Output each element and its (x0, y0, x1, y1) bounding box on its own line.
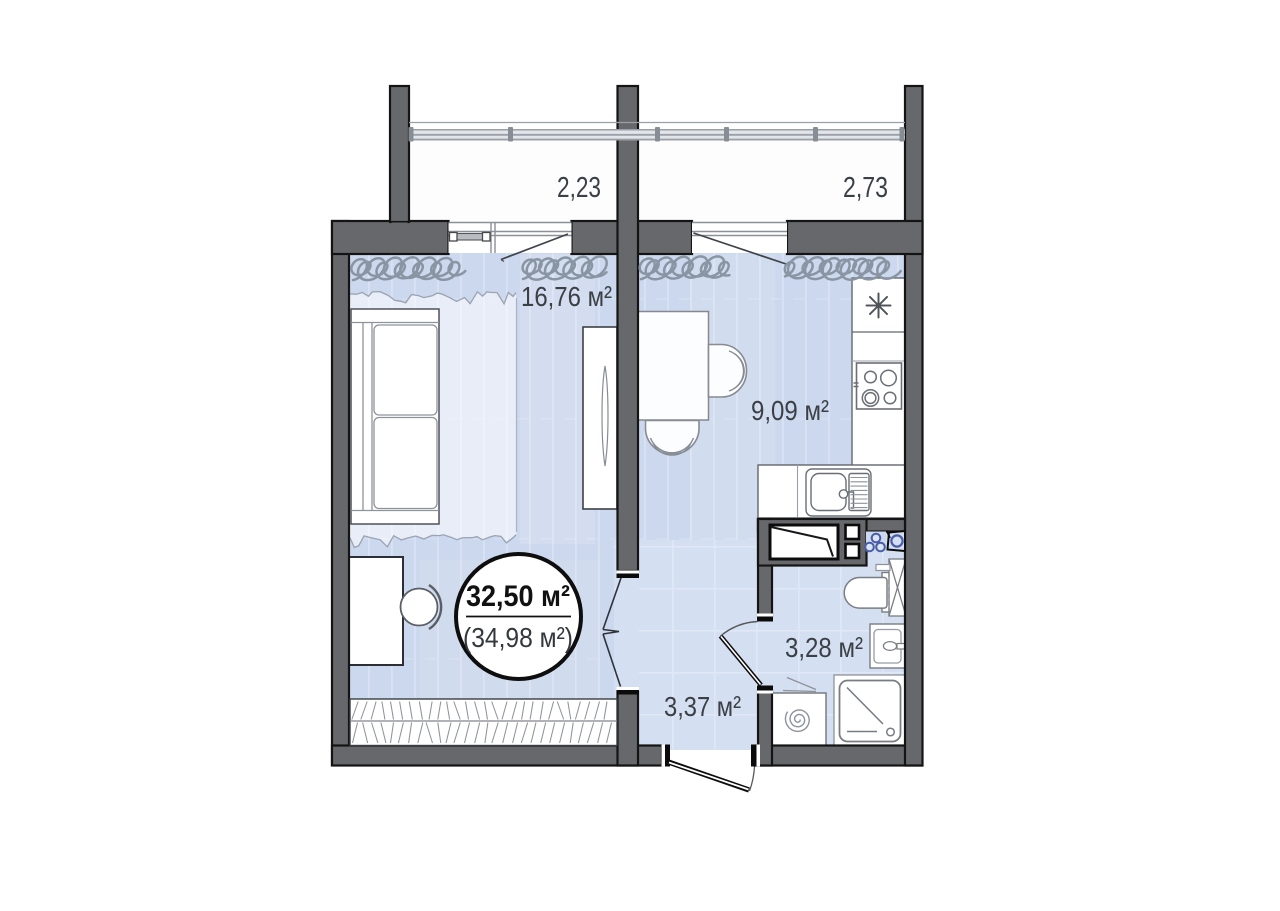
svg-text:3,28 м²: 3,28 м² (785, 632, 863, 663)
svg-text:2,73: 2,73 (843, 172, 888, 204)
svg-text:(34,98 м²): (34,98 м²) (463, 622, 573, 653)
svg-text:3,37 м²: 3,37 м² (664, 691, 741, 722)
svg-text:32,50 м²: 32,50 м² (466, 580, 570, 613)
svg-text:16,76 м²: 16,76 м² (521, 281, 612, 312)
svg-text:2,23: 2,23 (557, 172, 601, 204)
svg-text:9,09 м²: 9,09 м² (751, 395, 829, 426)
